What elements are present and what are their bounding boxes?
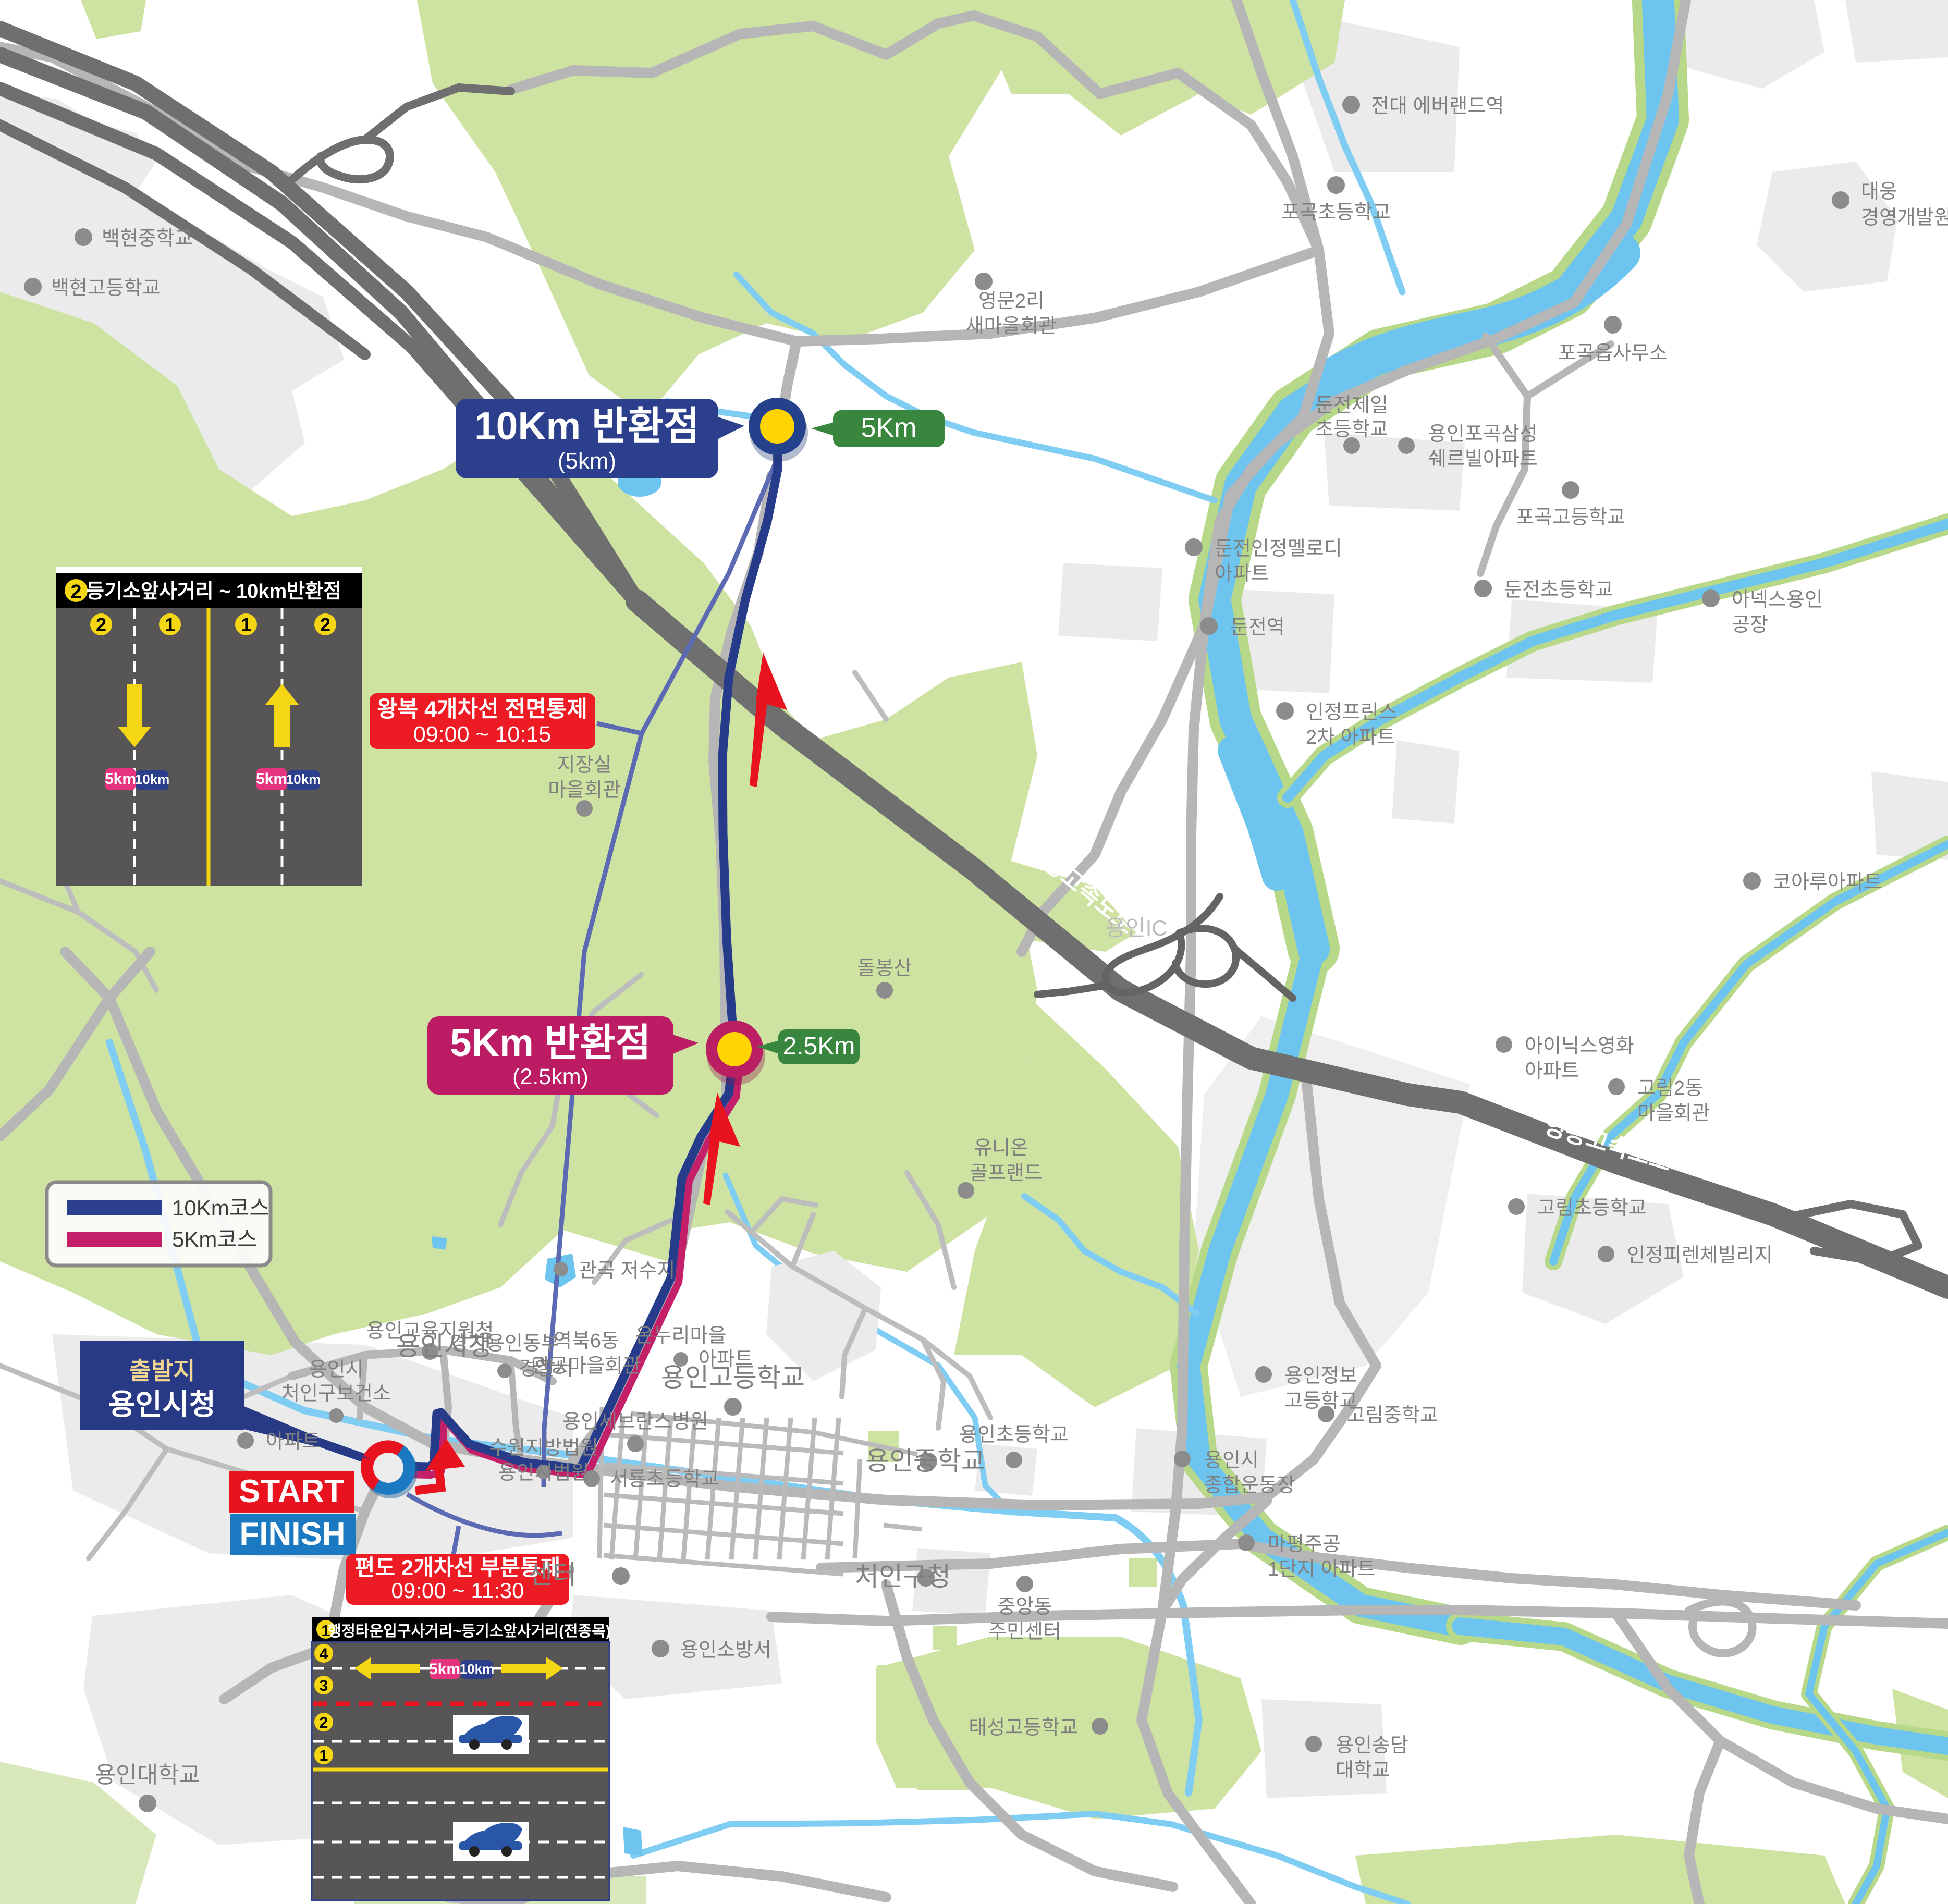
svg-text:4: 4 <box>320 1645 328 1663</box>
svg-text:포곡초등학교: 포곡초등학교 <box>1281 202 1391 224</box>
svg-text:09:00 ~ 11:30: 09:00 ~ 11:30 <box>391 1578 524 1603</box>
svg-text:영문2리: 영문2리 <box>978 290 1044 312</box>
svg-text:2: 2 <box>320 614 330 635</box>
svg-text:10Km 반환점: 10Km 반환점 <box>474 404 700 448</box>
svg-text:10km: 10km <box>135 771 170 787</box>
svg-text:용인시: 용인시 <box>1204 1450 1259 1471</box>
svg-text:고림2동: 고림2동 <box>1637 1077 1703 1099</box>
svg-text:온누리마을: 온누리마을 <box>635 1325 727 1347</box>
svg-text:전대 에버랜드역: 전대 에버랜드역 <box>1371 95 1504 117</box>
svg-text:둔전역: 둔전역 <box>1230 617 1285 638</box>
svg-text:인정프린스: 인정프린스 <box>1306 702 1397 723</box>
svg-text:5Km코스: 5Km코스 <box>172 1227 258 1251</box>
svg-text:새마을회관: 새마을회관 <box>966 315 1057 337</box>
svg-text:처인구보건소: 처인구보건소 <box>281 1383 391 1405</box>
svg-text:용인초등학교: 용인초등학교 <box>959 1424 1069 1446</box>
svg-text:2: 2 <box>70 581 81 603</box>
svg-text:둔전제일: 둔전제일 <box>1315 395 1388 416</box>
svg-text:2: 2 <box>320 1714 328 1731</box>
svg-text:초등학교: 초등학교 <box>1315 419 1388 440</box>
svg-text:센터: 센터 <box>529 1560 577 1589</box>
svg-text:용인시: 용인시 <box>309 1359 364 1381</box>
svg-text:인정피렌체빌리지: 인정피렌체빌리지 <box>1627 1245 1773 1267</box>
svg-text:10km: 10km <box>460 1661 495 1677</box>
svg-text:처인구청: 처인구청 <box>855 1562 951 1591</box>
svg-text:주민센터: 주민센터 <box>988 1621 1061 1643</box>
svg-text:마평주공: 마평주공 <box>1268 1533 1341 1555</box>
svg-text:공장: 공장 <box>1732 614 1768 636</box>
svg-text:돌봉산: 돌봉산 <box>857 957 912 979</box>
svg-text:용인고등학교: 용인고등학교 <box>661 1363 805 1392</box>
svg-text:2차 아파트: 2차 아파트 <box>1306 727 1395 748</box>
svg-text:포곡고등학교: 포곡고등학교 <box>1516 507 1625 529</box>
svg-text:태성고등학교: 태성고등학교 <box>969 1717 1078 1739</box>
svg-text:행정타운입구사거리~등기소앞사거리(전종목): 행정타운입구사거리~등기소앞사거리(전종목) <box>327 1623 610 1640</box>
svg-text:역북6동: 역북6동 <box>554 1330 619 1352</box>
svg-text:용인소방서: 용인소방서 <box>680 1639 771 1661</box>
svg-text:등기소앞사거리 ~ 10km반환점: 등기소앞사거리 ~ 10km반환점 <box>86 581 341 603</box>
svg-text:중앙동: 중앙동 <box>998 1596 1052 1618</box>
svg-text:경영개발원: 경영개발원 <box>1861 207 1948 229</box>
svg-text:3: 3 <box>320 1677 328 1694</box>
svg-text:수원지방법원: 수원지방법원 <box>489 1437 598 1459</box>
svg-text:(5km): (5km) <box>558 448 616 474</box>
svg-text:용인송담: 용인송담 <box>1336 1735 1408 1756</box>
svg-text:대웅: 대웅 <box>1861 181 1897 203</box>
svg-text:용인정보: 용인정보 <box>1284 1365 1357 1387</box>
svg-text:10Km코스: 10Km코스 <box>172 1196 269 1220</box>
svg-text:마을회관: 마을회관 <box>548 779 621 801</box>
svg-text:용인시법원: 용인시법원 <box>498 1462 590 1484</box>
svg-text:아파트: 아파트 <box>266 1431 321 1453</box>
svg-text:5Km 반환점: 5Km 반환점 <box>450 1021 651 1064</box>
svg-text:고림중학교: 고림중학교 <box>1347 1405 1438 1427</box>
svg-text:용인대학교: 용인대학교 <box>95 1762 200 1788</box>
svg-text:포곡읍사무소: 포곡읍사무소 <box>1558 342 1668 364</box>
svg-text:마을회관: 마을회관 <box>1637 1102 1710 1124</box>
svg-text:1: 1 <box>241 614 251 635</box>
svg-text:쉐르빌아파트: 쉐르빌아파트 <box>1428 448 1538 470</box>
svg-text:골프랜드: 골프랜드 <box>970 1162 1043 1184</box>
svg-text:5km: 5km <box>256 770 287 788</box>
svg-text:5km: 5km <box>429 1661 460 1678</box>
svg-text:09:00 ~ 10:15: 09:00 ~ 10:15 <box>413 722 551 747</box>
svg-text:둔전초등학교: 둔전초등학교 <box>1504 579 1613 601</box>
svg-text:용인시청: 용인시청 <box>108 1388 216 1421</box>
svg-text:종합운동장: 종합운동장 <box>1204 1475 1295 1496</box>
svg-text:고림초등학교: 고림초등학교 <box>1537 1197 1647 1219</box>
svg-text:서룡초등학교: 서룡초등학교 <box>610 1468 719 1490</box>
svg-text:백현중학교: 백현중학교 <box>102 228 193 250</box>
svg-text:대학교: 대학교 <box>1336 1760 1390 1782</box>
svg-text:1: 1 <box>165 614 175 635</box>
svg-text:2.5Km: 2.5Km <box>783 1033 855 1060</box>
svg-text:백현고등학교: 백현고등학교 <box>51 277 161 299</box>
svg-text:관곡 저수지: 관곡 저수지 <box>579 1260 675 1282</box>
svg-text:START: START <box>239 1473 344 1509</box>
svg-text:아파트: 아파트 <box>1525 1060 1579 1082</box>
svg-text:FINISH: FINISH <box>239 1516 345 1552</box>
svg-text:출발지: 출발지 <box>129 1357 195 1384</box>
svg-text:10km: 10km <box>286 771 321 787</box>
svg-text:1단지 아파트: 1단지 아파트 <box>1268 1558 1376 1580</box>
svg-text:아넥스용인: 아넥스용인 <box>1732 589 1823 611</box>
svg-text:유니온: 유니온 <box>974 1137 1028 1159</box>
svg-text:용인IC: 용인IC <box>1105 916 1167 940</box>
svg-text:관공마을회관: 관공마을회관 <box>532 1355 641 1377</box>
svg-text:코아루아파트: 코아루아파트 <box>1773 871 1882 893</box>
svg-text:용인세브란스병원: 용인세브란스병원 <box>562 1411 708 1433</box>
svg-text:용인포곡삼성: 용인포곡삼성 <box>1428 423 1538 445</box>
svg-text:5km: 5km <box>105 770 136 788</box>
svg-text:5Km: 5Km <box>861 413 917 443</box>
svg-text:고등학교: 고등학교 <box>1284 1390 1357 1412</box>
svg-text:2: 2 <box>96 614 106 635</box>
svg-text:1: 1 <box>320 1747 328 1764</box>
svg-text:(2.5km): (2.5km) <box>512 1064 589 1089</box>
svg-text:왕복 4개차선 전면통제: 왕복 4개차선 전면통제 <box>377 697 587 722</box>
svg-text:아이닉스영화: 아이닉스영화 <box>1525 1035 1634 1057</box>
svg-text:아파트: 아파트 <box>1215 563 1269 585</box>
svg-text:용인중학교: 용인중학교 <box>865 1446 985 1476</box>
svg-text:둔전인정멜로디: 둔전인정멜로디 <box>1215 538 1342 560</box>
svg-text:경기용인동부: 경기용인동부 <box>450 1333 559 1355</box>
svg-text:지장실: 지장실 <box>557 754 612 776</box>
